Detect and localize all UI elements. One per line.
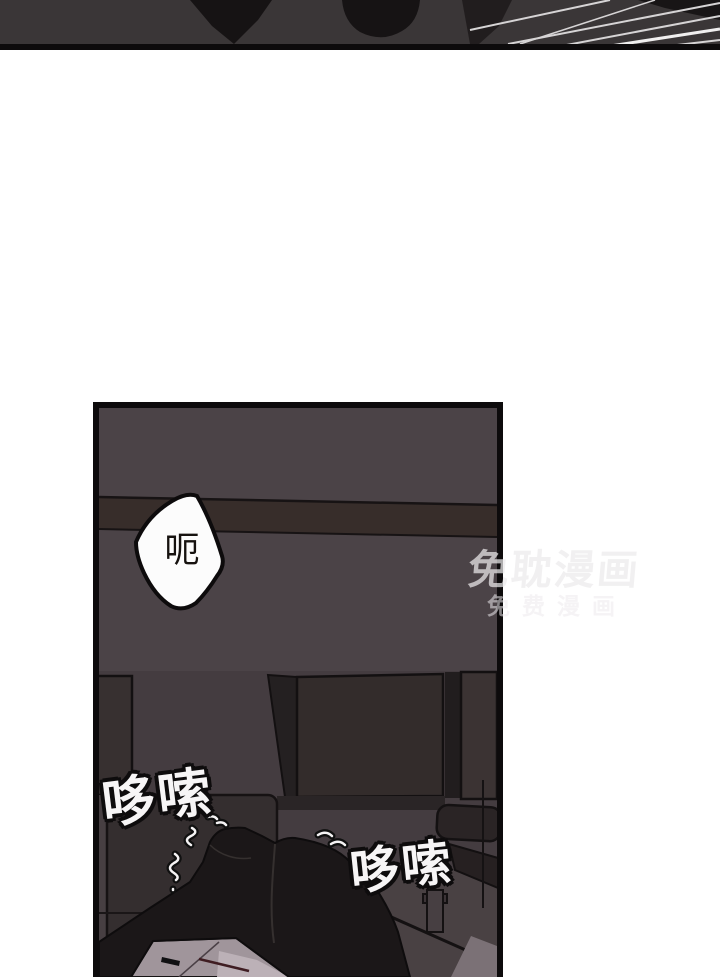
sfx-shiver-left: 哆嗦: [99, 765, 217, 831]
right-box: [461, 672, 497, 799]
speech-bubble-text: 呃: [146, 534, 218, 569]
box-gap-shadow: [445, 672, 461, 798]
watermark-line-2: 免费漫画: [487, 596, 627, 619]
box-shadow: [277, 796, 445, 810]
top-panel: [0, 0, 720, 50]
panel-border-bottom: [0, 44, 720, 50]
middle-box-front: [297, 674, 443, 797]
watermark-line-1: 免耽漫画: [466, 550, 642, 591]
chair-post: [427, 890, 443, 932]
sfx-shiver-right: 哆嗦: [348, 838, 457, 898]
comic-page: 呃 哆嗦 哆嗦 免耽漫画 免费漫画: [0, 0, 720, 977]
